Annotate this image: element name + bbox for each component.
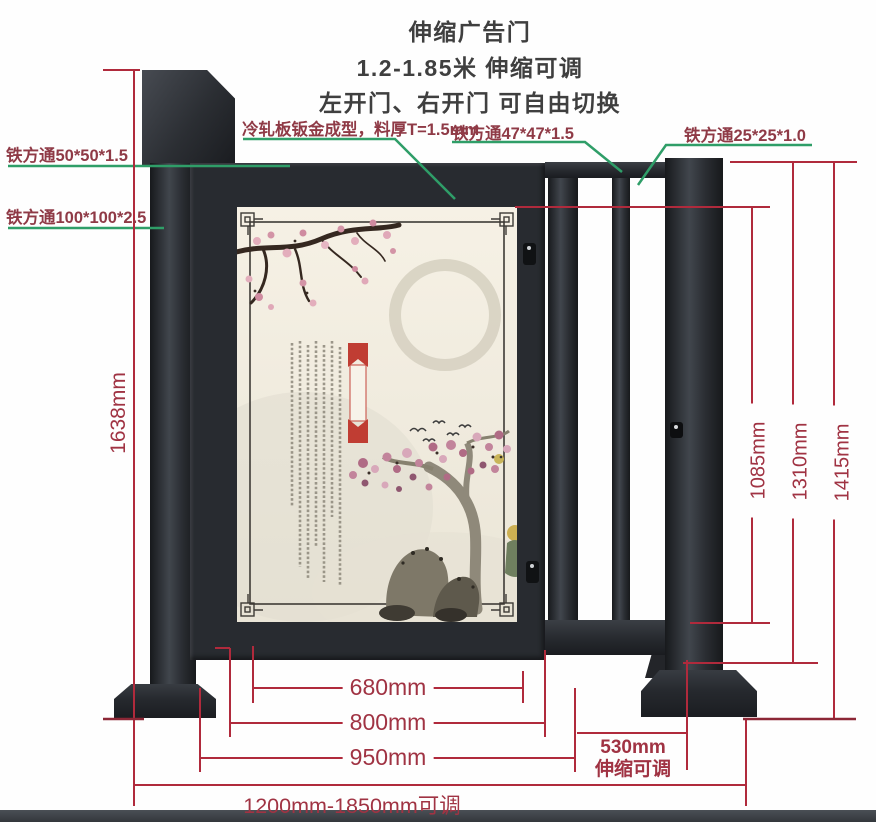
callout-tube-25: 铁方通25*25*1.0: [684, 122, 806, 146]
ink-painting-artwork: [237, 207, 517, 622]
callout-sheet-metal: 冷轧板钣金成型，料厚T=1.5mm: [242, 116, 479, 140]
title-line-3: 左开门、右开门 可自由切换: [319, 84, 621, 118]
dim-total-height: 1638mm: [107, 358, 131, 468]
dim-rail-height: 1310mm: [790, 405, 813, 519]
dim-retract-width: 530mm 伸缩可调: [578, 737, 688, 782]
dim-leaf-outer-width: 950mm: [343, 744, 434, 771]
door-lock-upper: [523, 243, 536, 265]
upright-47-tube: [548, 178, 578, 655]
right-post: [665, 158, 723, 670]
dim-retract-width-note: 伸缩可调: [578, 759, 688, 781]
dim-inner-height: 1085mm: [748, 404, 771, 518]
callout-tube-50: 铁方通50*50*1.5: [6, 142, 128, 166]
dim-door-width: 800mm: [343, 709, 434, 736]
title-line-2: 1.2-1.85米 伸缩可调: [357, 49, 584, 83]
motor-housing: [142, 70, 235, 165]
red-ribbon-banner: [348, 343, 368, 443]
product-diagram: 勤 奋 天道酬勤: [0, 0, 876, 822]
door-advert-panel: [237, 207, 517, 622]
dim-panel-width: 680mm: [343, 674, 434, 701]
callout-tube-100: 铁方通100*100*2.5: [6, 204, 146, 228]
post-keyhole: [670, 422, 683, 438]
upright-25-tube: [612, 178, 630, 622]
title-line-1: 伸缩广告门: [409, 13, 532, 47]
door-lock-lower: [526, 561, 539, 583]
right-post-base: [641, 670, 757, 717]
dim-retract-width-value: 530mm: [578, 737, 688, 759]
dim-post-height: 1415mm: [832, 406, 855, 520]
dim-total-width: 1200mm-1850mm可调: [243, 789, 460, 820]
left-post-base: [114, 684, 216, 718]
callout-tube-47: 铁方通47*47*1.5: [452, 120, 574, 144]
